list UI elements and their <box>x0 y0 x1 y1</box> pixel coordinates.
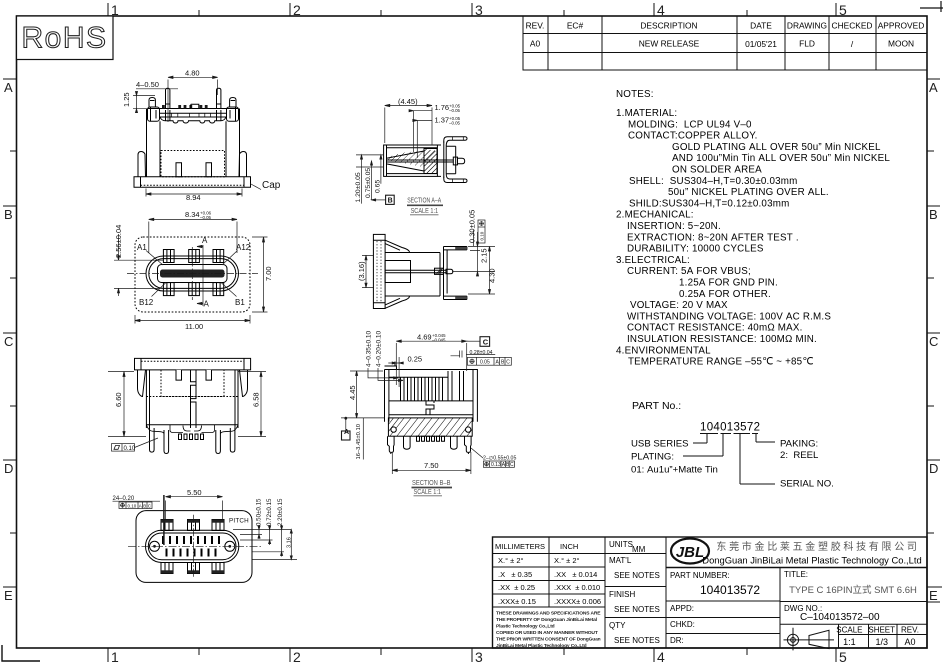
svg-text:THE PRIOR WRITTEN CONSENT OF D: THE PRIOR WRITTEN CONSENT OF DongGuan <box>496 637 601 643</box>
svg-text:24–0.20: 24–0.20 <box>113 496 135 502</box>
svg-text:SERIAL NO.: SERIAL NO. <box>780 479 834 490</box>
svg-text:FLD: FLD <box>799 39 815 49</box>
svg-text:PITCH: PITCH <box>229 518 249 525</box>
svg-text:104013572: 104013572 <box>700 583 760 597</box>
svg-text:2.MECHANICAL:: 2.MECHANICAL: <box>616 210 694 221</box>
svg-text:X.° ± 2°: X.° ± 2° <box>498 556 524 565</box>
svg-text:4.30: 4.30 <box>488 268 497 283</box>
svg-text:DURABILITY: 10000 CYCLES: DURABILITY: 10000 CYCLES <box>627 244 764 255</box>
svg-text:.X ± 0.35: .X ± 0.35 <box>498 570 532 579</box>
svg-text:4.69: 4.69 <box>417 333 432 342</box>
svg-text:MAT'L: MAT'L <box>609 556 632 565</box>
svg-text:7.50: 7.50 <box>424 461 439 470</box>
svg-text:SCALE 1:1: SCALE 1:1 <box>411 206 439 215</box>
svg-text:Plastic Technology Co.,Ltd: Plastic Technology Co.,Ltd <box>496 624 555 630</box>
svg-text:3: 3 <box>475 2 483 18</box>
svg-text:0.28±0.04: 0.28±0.04 <box>470 350 493 356</box>
svg-text:.XXX± 0.15: .XXX± 0.15 <box>498 597 536 606</box>
svg-text:B: B <box>929 207 938 222</box>
svg-text:INSULATION RESISTANCE: 100MΩ M: INSULATION RESISTANCE: 100MΩ MIN. <box>627 334 817 345</box>
svg-text:2: REEL: 2: REEL <box>780 450 819 461</box>
svg-text:GOLD PLATING ALL OVER 50u” Min: GOLD PLATING ALL OVER 50u” Min NICKEL <box>672 142 881 153</box>
svg-text:DESCRIPTION: DESCRIPTION <box>640 21 697 31</box>
svg-text:4.45: 4.45 <box>348 385 357 400</box>
svg-text:104013572: 104013572 <box>700 422 760 434</box>
svg-text:MILLIMETERS: MILLIMETERS <box>495 542 545 551</box>
svg-text:SHILD:SUS304–H,T=0.12±0.03mm: SHILD:SUS304–H,T=0.12±0.03mm <box>629 198 789 209</box>
svg-text:REV.: REV. <box>526 21 545 31</box>
svg-text:5.50: 5.50 <box>187 488 202 497</box>
svg-text:CONTACT:COPPER ALLOY.: CONTACT:COPPER ALLOY. <box>628 131 758 142</box>
svg-text:8.94: 8.94 <box>186 193 201 202</box>
svg-text:C: C <box>148 504 152 509</box>
svg-text:1:1: 1:1 <box>843 637 856 647</box>
svg-text:–0.05: –0.05 <box>200 215 212 220</box>
svg-text:A12: A12 <box>236 243 251 252</box>
svg-text:4–0.20±0.10: 4–0.20±0.10 <box>376 331 383 367</box>
svg-text:SEE NOTES: SEE NOTES <box>614 605 660 614</box>
svg-text:4.80: 4.80 <box>185 69 200 78</box>
svg-text:11.00: 11.00 <box>185 322 203 331</box>
svg-text:TEMPERATURE RANGE –55℃ ~ +85℃: TEMPERATURE RANGE –55℃ ~ +85℃ <box>628 357 814 368</box>
svg-text:INCH: INCH <box>560 542 578 551</box>
svg-text:0.13: 0.13 <box>491 462 501 468</box>
svg-text:SCALE 1:1: SCALE 1:1 <box>414 487 442 496</box>
svg-text:SCALE: SCALE <box>836 626 862 635</box>
svg-text:REV.: REV. <box>901 626 919 635</box>
svg-text:A1: A1 <box>137 243 147 252</box>
svg-text:SEE NOTES: SEE NOTES <box>614 636 660 645</box>
svg-text:B: B <box>388 198 393 205</box>
svg-text:东莞市金比莱五金塑胶科技有限公司: 东莞市金比莱五金塑胶科技有限公司 <box>716 540 919 553</box>
svg-text:INSERTION: 5~20N.: INSERTION: 5~20N. <box>627 221 721 232</box>
svg-text:B1: B1 <box>235 298 245 307</box>
svg-text:D: D <box>929 461 938 476</box>
svg-text:C: C <box>510 462 514 468</box>
svg-text:/: / <box>851 39 854 49</box>
svg-text:MOLDING: LCP UL94 V–0: MOLDING: LCP UL94 V–0 <box>628 119 752 130</box>
svg-text:FINISH: FINISH <box>609 590 635 599</box>
svg-text:50u” NICKEL PLATING OVER ALL.: 50u” NICKEL PLATING OVER ALL. <box>668 187 829 198</box>
svg-text:(4.45): (4.45) <box>398 97 418 106</box>
svg-text:0.30±0.05: 0.30±0.05 <box>468 210 477 243</box>
svg-text:E: E <box>929 588 938 603</box>
svg-text:1.76: 1.76 <box>435 103 450 112</box>
svg-text:A: A <box>4 80 13 95</box>
svg-text:PART NUMBER:: PART NUMBER: <box>670 571 730 580</box>
svg-text:RoHS: RoHS <box>21 22 107 55</box>
svg-text:NOTES:: NOTES: <box>616 89 654 100</box>
svg-text:C: C <box>4 334 13 349</box>
svg-text:APPROVED: APPROVED <box>878 21 925 31</box>
svg-text:A0: A0 <box>904 637 915 647</box>
svg-text:–0.045: –0.045 <box>432 338 446 343</box>
svg-text:1.25A FOR GND PIN.: 1.25A FOR GND PIN. <box>679 278 778 289</box>
svg-text:CHKD:: CHKD: <box>670 620 695 629</box>
svg-text:PAKING:: PAKING: <box>780 439 818 450</box>
svg-text:SECTION A–A: SECTION A–A <box>407 196 442 205</box>
svg-text:2: 2 <box>293 649 301 665</box>
svg-text:2.20±0.15: 2.20±0.15 <box>277 498 284 526</box>
svg-text:D: D <box>4 461 13 476</box>
svg-text:3.ELECTRICAL:: 3.ELECTRICAL: <box>616 255 690 266</box>
svg-text:01/05'21: 01/05'21 <box>745 39 777 49</box>
svg-text:1.20±0.05: 1.20±0.05 <box>355 172 362 202</box>
svg-text:4: 4 <box>657 649 665 665</box>
svg-text:DR:: DR: <box>670 636 684 645</box>
svg-text:A0: A0 <box>530 39 541 49</box>
svg-text:1.37: 1.37 <box>435 116 450 125</box>
svg-text:EC#: EC# <box>567 21 584 31</box>
svg-text:0.05: 0.05 <box>480 359 490 365</box>
svg-text:JBL: JBL <box>676 544 704 561</box>
svg-text:2.15: 2.15 <box>480 248 489 263</box>
svg-text:8.34: 8.34 <box>185 210 200 219</box>
svg-text:CURRENT: 5A FOR VBUS;: CURRENT: 5A FOR VBUS; <box>627 266 751 277</box>
svg-text:TYPE C 16PIN立式 SMT 6.6H: TYPE C 16PIN立式 SMT 6.6H <box>789 584 917 596</box>
svg-text:Cap: Cap <box>262 180 281 191</box>
svg-text:B12: B12 <box>139 298 154 307</box>
svg-text:DATE: DATE <box>750 21 772 31</box>
svg-text:4.ENVIRONMENTAL: 4.ENVIRONMENTAL <box>616 345 711 356</box>
svg-text:MM: MM <box>632 545 646 554</box>
svg-text:0.10: 0.10 <box>128 504 137 509</box>
svg-text:6.60: 6.60 <box>114 392 123 407</box>
svg-text:5: 5 <box>839 649 847 665</box>
svg-text:DongGuan JinBiLai Metal Plasti: DongGuan JinBiLai Metal Plastic Technolo… <box>702 555 921 566</box>
svg-text:SHEET: SHEET <box>868 626 895 635</box>
svg-text:C: C <box>483 338 489 347</box>
svg-text:THE PROPERTY OF DongGuan JinBi: THE PROPERTY OF DongGuan JinBiLai Metal <box>496 617 598 623</box>
svg-text:C: C <box>506 359 510 365</box>
svg-text:0.72±0.15: 0.72±0.15 <box>266 498 273 526</box>
svg-text:(3.16): (3.16) <box>357 261 366 281</box>
svg-text:VOLTAGE: 20 V MAX: VOLTAGE: 20 V MAX <box>630 300 728 311</box>
svg-text:USB SERIES: USB SERIES <box>631 439 689 450</box>
svg-text:SHELL: SUS304–H,T=0.30±0.03mm: SHELL: SUS304–H,T=0.30±0.03mm <box>629 176 797 187</box>
svg-text:0.50±0.15: 0.50±0.15 <box>255 498 262 526</box>
svg-text:4–0.35±0.10: 4–0.35±0.10 <box>366 331 373 367</box>
svg-text:CHECKED: CHECKED <box>832 21 873 31</box>
svg-text:1.25: 1.25 <box>122 92 131 107</box>
svg-text:CONTACT RESISTANCE: 40mΩ MAX.: CONTACT RESISTANCE: 40mΩ MAX. <box>627 323 803 334</box>
svg-text:EXTRACTION: 8~20N AFTER TEST .: EXTRACTION: 8~20N AFTER TEST . <box>627 232 799 243</box>
svg-text:0.25: 0.25 <box>408 355 423 364</box>
svg-text:AND 100u”Min Tin ALL OVER 50u”: AND 100u”Min Tin ALL OVER 50u” Min NICKE… <box>672 153 890 164</box>
svg-text:0.10: 0.10 <box>124 446 136 452</box>
svg-text:0.65: 0.65 <box>374 180 381 193</box>
svg-text:A: A <box>929 80 938 95</box>
svg-text:2–∅0.55±0.05: 2–∅0.55±0.05 <box>483 455 516 461</box>
svg-text:E: E <box>4 588 13 603</box>
svg-text:.XXX ± 0.010: .XXX ± 0.010 <box>554 583 600 592</box>
svg-text:.XXXX± 0.006: .XXXX± 0.006 <box>554 597 601 606</box>
svg-text:SEE NOTES: SEE NOTES <box>614 571 660 580</box>
svg-text:2: 2 <box>293 2 301 18</box>
svg-text:TITLE:: TITLE: <box>784 570 808 579</box>
svg-text:JinBiLai Metal Plastic Technol: JinBiLai Metal Plastic Technology Co.,Lt… <box>496 643 587 649</box>
svg-text:ON SOLDER AREA: ON SOLDER AREA <box>672 165 762 176</box>
svg-text:1: 1 <box>111 649 119 665</box>
svg-text:2.56±0.04: 2.56±0.04 <box>114 225 123 258</box>
svg-text:C–104013572–00: C–104013572–00 <box>800 612 880 623</box>
svg-text:X.° ± 2°: X.° ± 2° <box>554 556 580 565</box>
svg-text:APPD:: APPD: <box>670 604 694 613</box>
svg-text:PART No.:: PART No.: <box>632 400 681 412</box>
svg-text:1.MATERIAL:: 1.MATERIAL: <box>616 108 677 119</box>
svg-text:A: A <box>139 504 142 509</box>
svg-text:SECTION B–B: SECTION B–B <box>412 478 451 487</box>
svg-text:0.75±0.05: 0.75±0.05 <box>365 168 372 198</box>
svg-text:3: 3 <box>475 649 483 665</box>
svg-text:A: A <box>344 429 349 436</box>
svg-text:A: A <box>204 300 210 309</box>
svg-text:B: B <box>143 504 146 509</box>
svg-text:WITHSTANDING VOLTAGE: 100V AC: WITHSTANDING VOLTAGE: 100V AC R.M.S <box>627 311 831 322</box>
svg-text:.XX ± 0.25: .XX ± 0.25 <box>498 583 535 592</box>
svg-text:3.16: 3.16 <box>286 537 292 548</box>
svg-text:.XX ± 0.014: .XX ± 0.014 <box>554 570 597 579</box>
svg-text:16–3.45±0.10: 16–3.45±0.10 <box>356 424 362 459</box>
svg-text:PLATING:: PLATING: <box>631 452 674 463</box>
svg-text:–0.05: –0.05 <box>449 108 461 113</box>
svg-text:NEW RELEASE: NEW RELEASE <box>639 39 700 49</box>
svg-text:MOON: MOON <box>888 39 914 49</box>
svg-text:DRAWING: DRAWING <box>787 21 827 31</box>
svg-text:B: B <box>501 359 505 365</box>
svg-text:THESE DRAWINGS AND SPECIFICATI: THESE DRAWINGS AND SPECIFICATIONS ARE <box>496 611 601 617</box>
svg-text:–0.05: –0.05 <box>449 121 461 126</box>
svg-text:UNITS: UNITS <box>609 540 633 549</box>
svg-text:B: B <box>4 207 13 222</box>
svg-text:01: Au1u”+Matte Tin: 01: Au1u”+Matte Tin <box>631 465 718 476</box>
svg-text:A: A <box>496 359 500 365</box>
svg-text:QTY: QTY <box>609 621 626 630</box>
svg-text:COPIED OR USED IN ANY MANNER W: COPIED OR USED IN ANY MANNER WITHOUT <box>496 630 598 636</box>
svg-text:6.58: 6.58 <box>252 392 261 407</box>
svg-text:A: A <box>202 236 208 245</box>
svg-text:0.25A FOR OTHER.: 0.25A FOR OTHER. <box>679 289 771 300</box>
svg-text:0.10: 0.10 <box>480 231 485 240</box>
svg-text:7.00: 7.00 <box>264 266 273 281</box>
svg-text:C: C <box>929 334 938 349</box>
svg-text:4–0.50: 4–0.50 <box>136 80 159 89</box>
svg-text:1/3: 1/3 <box>875 637 888 647</box>
